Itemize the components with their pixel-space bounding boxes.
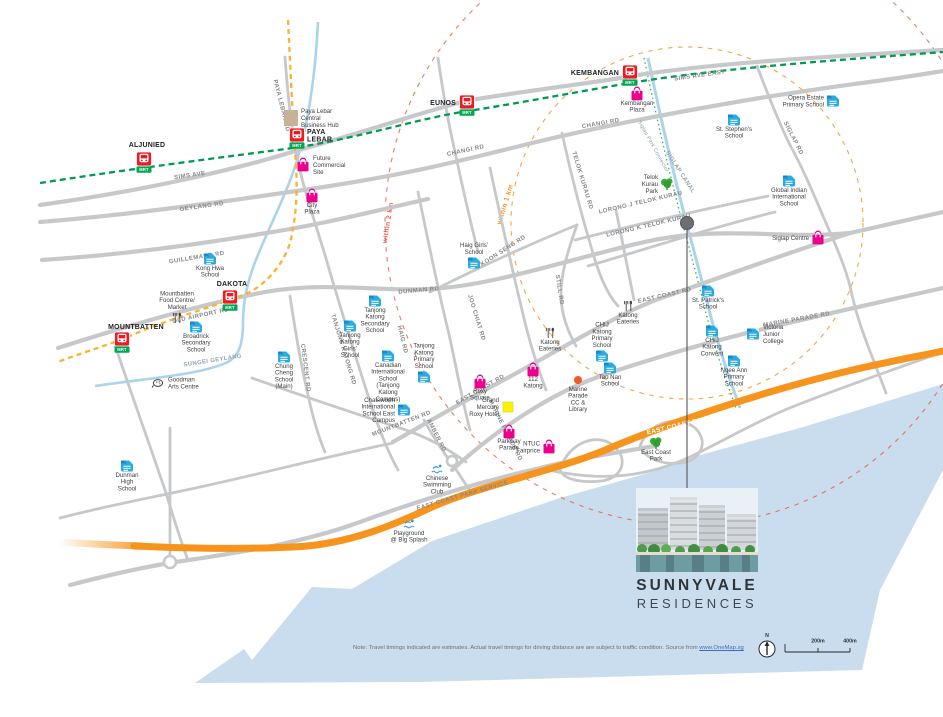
- community-centre-icon: [574, 376, 582, 384]
- poi-st-patrick-s-school: St. Patrick'sSchool: [692, 286, 724, 311]
- school-icon: [604, 363, 616, 374]
- location-map: within 1 kmwithin 2 km SIMS AVESIMS AVE …: [0, 0, 943, 717]
- road-label: EAST COAST RD: [637, 287, 692, 305]
- poi-katong-eateries: KatongEateries: [539, 328, 561, 353]
- school-icon: [418, 372, 430, 383]
- poi-label: Club: [431, 488, 444, 495]
- poi-label: Plaza: [304, 209, 320, 216]
- road-label: JOO CHIAT RD: [466, 294, 486, 342]
- station-name: ALJUNIED: [129, 142, 166, 149]
- poi-katong-eateries: KatongEateries: [617, 301, 639, 326]
- project-name: SUNNYVALE: [636, 577, 758, 595]
- poi-tanjong-katong-girls-school: TanjongKatongGirls'School: [339, 321, 360, 360]
- note-text: Note: Travel timings indicated are estim…: [353, 645, 699, 651]
- eatery-icon: [547, 328, 554, 338]
- poi-opera-estate-primary-school: Opera EstatePrimary School: [783, 95, 839, 109]
- school-icon: [783, 176, 795, 187]
- poi-label: School: [118, 485, 137, 492]
- mrt-badge: MRT: [625, 80, 635, 85]
- road: [561, 225, 577, 346]
- school-icon: [706, 326, 718, 337]
- poi-st-stephen-s-school: St. Stephen'sSchool: [716, 115, 752, 140]
- poi-label: Site: [313, 169, 324, 176]
- school-icon: [190, 322, 202, 333]
- poi-label: School: [725, 133, 744, 140]
- poi-tao-nan-school: Tao NanSchool: [599, 363, 622, 388]
- mrt-badge: MRT: [292, 143, 302, 148]
- hotel-icon: [503, 402, 513, 412]
- school-icon: [728, 115, 740, 126]
- poi-kembangan-plaza: KembanganPlaza: [621, 87, 654, 113]
- poi-label: Arts Centre: [168, 383, 199, 390]
- mrt-badge: MRT: [117, 347, 127, 352]
- school-icon: [278, 352, 290, 363]
- poi-broadrick-secondary-school: BroadrickSecondarySchool: [181, 322, 211, 354]
- sea: [195, 384, 943, 683]
- poi-label: School: [366, 327, 385, 334]
- road: [562, 133, 618, 306]
- poi-dunman-high-school: DunmanHighSchool: [115, 461, 138, 493]
- eatery-icon: [625, 301, 632, 311]
- station-name: LEBAR: [307, 136, 332, 143]
- road-label: GUILLEMARD RD: [169, 251, 226, 266]
- poi-label: Eateries: [617, 319, 639, 326]
- poi-label: Park: [645, 188, 658, 195]
- project-card: SUNNYVALE RESIDENCES: [636, 488, 758, 611]
- project-photo: [636, 488, 758, 572]
- road: [42, 199, 428, 260]
- east-west-mrt-line: [40, 52, 943, 183]
- school-icon: [204, 254, 216, 265]
- school-icon: [702, 286, 714, 297]
- station-name: EUNOS: [430, 100, 456, 107]
- poi-telok-kurau-park: TelokKurauPark: [642, 174, 673, 195]
- school-icon: [747, 329, 759, 340]
- swimmer-icon: [432, 465, 442, 473]
- poi-label: College: [763, 338, 784, 345]
- road-label: AMBER RD: [425, 418, 447, 453]
- school-icon: [121, 461, 133, 472]
- school-icon: [827, 96, 839, 107]
- poi-label: Library: [569, 406, 589, 413]
- map-canvas: within 1 kmwithin 2 km SIMS AVESIMS AVE …: [0, 0, 943, 717]
- mrt-badge: MRT: [462, 110, 472, 115]
- mrt-station-icon: MRT: [290, 128, 305, 149]
- site-marker: [681, 217, 694, 230]
- station-name: KEMBANGAN: [571, 70, 619, 77]
- poi-east-coast-park: East CoastPark: [641, 437, 671, 462]
- poi-label: School: [593, 342, 612, 349]
- poi-label: Siglap Centre: [772, 235, 810, 242]
- station-mountbatten: MRTMOUNTBATTEN: [108, 324, 164, 353]
- poi-future-commercial-site: FutureCommercialSite: [298, 155, 346, 176]
- park-tree-icon: [661, 178, 672, 190]
- road-label: LORONG J TELOK KURAU: [598, 190, 683, 215]
- onemap-link[interactable]: www.OneMap.sg: [699, 645, 744, 651]
- water-label: SIGLAP CANAL: [664, 150, 696, 194]
- shopping-bag-icon: [298, 158, 309, 171]
- station-eunos: MRTEUNOS: [430, 95, 474, 116]
- station-name: MOUNTBATTEN: [108, 324, 164, 331]
- poi-label: Fairprice: [516, 447, 540, 454]
- poi-label: Business Hub: [301, 122, 339, 129]
- project-name-2: RESIDENCES: [636, 596, 758, 611]
- poi-label: School: [187, 346, 206, 353]
- scale-400m: 400m: [843, 639, 857, 645]
- poi-label: School: [201, 272, 220, 279]
- school-icon: [468, 258, 480, 269]
- poi-tanjong-katong-primary-school: TanjongKatongPrimarySchool: [413, 343, 435, 383]
- roundabout: [164, 556, 176, 568]
- poi-label: School: [699, 304, 718, 311]
- poi-label: School: [415, 363, 434, 370]
- road: [60, 443, 393, 518]
- school-icon: [369, 296, 381, 307]
- shopping-bag-icon: [544, 440, 555, 453]
- mrt-badge: MRT: [225, 305, 235, 310]
- poi-chung-cheng-school-main: ChungChengSchool(Main): [275, 352, 294, 391]
- poi-tanjong-katong-secondary-school: TanjongKatongSecondarySchool: [360, 296, 390, 335]
- ecp-highway-fade: [58, 542, 142, 546]
- poi-label: Plaza: [629, 107, 645, 114]
- mrt-station-icon: MRT: [137, 152, 152, 173]
- poi-label: Convent: [701, 350, 724, 357]
- map-note: Note: Travel timings indicated are estim…: [353, 645, 744, 651]
- mrt-station-icon: MRT: [223, 290, 238, 311]
- compass-n-label: N: [765, 633, 769, 639]
- ecp-label: EAST COAST PARKWAY (ECP): [646, 407, 747, 437]
- poi-label: Katong: [523, 383, 542, 390]
- school-icon: [596, 351, 608, 362]
- school-icon: [382, 351, 394, 362]
- school-icon: [344, 321, 356, 332]
- scale-200m: 200m: [811, 639, 825, 645]
- mrt-station-icon: MRT: [115, 332, 130, 353]
- poi-global-indian-international-school: Global IndianInternationalSchool: [771, 176, 807, 208]
- shopping-bag-icon: [632, 87, 643, 100]
- road-label: SIMS AVE EAST: [674, 69, 726, 82]
- shopping-bag-icon: [475, 375, 486, 388]
- mrt-station-icon: MRT: [460, 95, 475, 116]
- station-name: DAKOTA: [217, 281, 248, 288]
- poi-label: Primary School: [783, 101, 824, 108]
- school-icon: [398, 405, 410, 416]
- mrt-badge: MRT: [139, 167, 149, 172]
- poi-label: School: [465, 249, 484, 256]
- poi-ntuc-fairprice: NTUCFairprice: [516, 440, 554, 454]
- poi-label: Campus: [372, 417, 395, 424]
- poi-label: School: [341, 352, 360, 359]
- poi-label: School: [725, 380, 744, 387]
- business-hub-icon: [284, 110, 298, 126]
- roundabout: [447, 456, 457, 466]
- poi-label: Market: [168, 304, 187, 311]
- mrt-station-icon: MRT: [623, 65, 638, 86]
- road-label: HAIG RD: [396, 325, 409, 354]
- school-icon: [728, 356, 740, 367]
- poi-paya-lebar-central-business-hub: Paya LebarCentralBusiness Hub: [284, 108, 339, 129]
- station-name: PAYA: [307, 129, 325, 136]
- road: [616, 210, 634, 300]
- poi-canadian-international-school-tanjong-katong-campus: CanadianInternationalSchool(TanjongKaton…: [371, 351, 405, 403]
- poi-label: Roxy Hotel: [469, 411, 499, 418]
- arts-palette-icon: [152, 380, 163, 388]
- poi-label: Park: [650, 456, 663, 463]
- poi-victoria-junior-college: VictoriaJuniorCollege: [747, 324, 784, 345]
- poi-label: School: [601, 381, 620, 388]
- poi-label: (Main): [275, 383, 292, 390]
- poi-label: @ Big Splash: [390, 537, 427, 544]
- poi-label: Eateries: [539, 346, 561, 353]
- road-label: KOON SENG RD: [480, 234, 527, 268]
- road: [418, 192, 470, 430]
- poi-chij-katong-primary-school: CHIJKatongPrimarySchool: [592, 322, 614, 362]
- poi-label: School: [780, 200, 799, 207]
